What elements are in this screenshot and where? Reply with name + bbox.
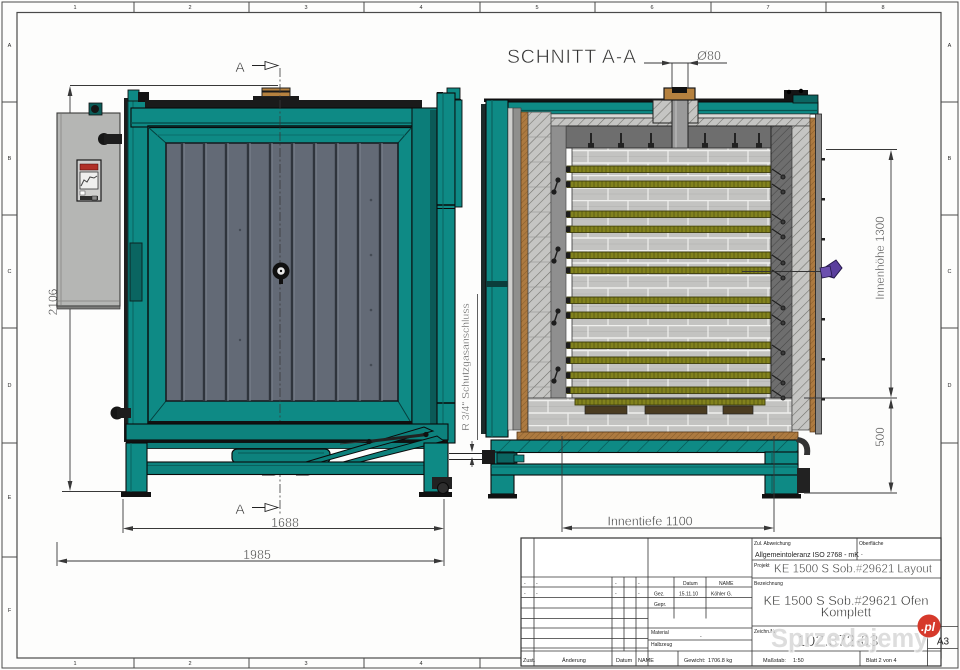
- svg-text:A: A: [948, 43, 952, 49]
- svg-text:2: 2: [188, 661, 191, 667]
- svg-text:C: C: [948, 269, 952, 275]
- svg-text:B: B: [948, 156, 952, 162]
- svg-text:500: 500: [875, 427, 887, 446]
- svg-text:6: 6: [650, 5, 653, 11]
- svg-text:1688: 1688: [271, 516, 299, 530]
- svg-text:15.11.10: 15.11.10: [679, 592, 698, 598]
- svg-text:C: C: [8, 269, 12, 275]
- svg-text:Komplett: Komplett: [821, 605, 872, 620]
- svg-text:A: A: [8, 43, 12, 49]
- svg-text:E: E: [8, 495, 12, 501]
- svg-text:Material: Material: [651, 630, 669, 636]
- svg-text:Innentiefe 1100: Innentiefe 1100: [607, 515, 692, 529]
- svg-text:4: 4: [419, 661, 422, 667]
- svg-text:8: 8: [881, 5, 884, 11]
- svg-text:4: 4: [419, 5, 422, 11]
- svg-text:Halbzeug: Halbzeug: [651, 642, 672, 648]
- svg-text:Datum: Datum: [616, 658, 633, 664]
- svg-text:3: 3: [304, 661, 307, 667]
- svg-text:Bezeichnung: Bezeichnung: [754, 581, 783, 587]
- svg-text:KE 1500 S Sob.#29621 Layout: KE 1500 S Sob.#29621 Layout: [774, 564, 933, 576]
- svg-text:R 3/4" Schutzgasanschluss: R 3/4" Schutzgasanschluss: [460, 303, 472, 430]
- svg-text:Projekt: Projekt: [754, 563, 770, 569]
- svg-text:2: 2: [188, 5, 191, 11]
- svg-text:1: 1: [73, 661, 76, 667]
- svg-text:Innenhöhe 1300: Innenhöhe 1300: [875, 216, 887, 299]
- svg-text:A: A: [235, 501, 245, 517]
- svg-text:D: D: [8, 383, 12, 389]
- svg-text:A: A: [235, 59, 245, 75]
- svg-text:1985: 1985: [243, 548, 271, 562]
- svg-text:A3: A3: [937, 637, 950, 648]
- svg-text:B: B: [8, 156, 12, 162]
- svg-text:.pl: .pl: [921, 620, 936, 634]
- svg-text:Gewicht:: Gewicht:: [684, 658, 706, 664]
- svg-text:Gepr.: Gepr.: [654, 602, 666, 608]
- svg-text:7: 7: [766, 5, 769, 11]
- svg-text:Gez.: Gez.: [654, 592, 665, 598]
- svg-text:Datum: Datum: [683, 581, 698, 587]
- svg-text:Zust.: Zust.: [523, 658, 536, 664]
- svg-text:1: 1: [73, 5, 76, 11]
- svg-text:SCHNITT A-A: SCHNITT A-A: [507, 46, 637, 68]
- svg-text:D: D: [948, 383, 952, 389]
- svg-text:NAME: NAME: [719, 581, 734, 587]
- svg-text:80: 80: [707, 49, 721, 63]
- svg-text:1:50: 1:50: [793, 658, 804, 664]
- svg-text:Allgemeintoleranz ISO 2768 - m: Allgemeintoleranz ISO 2768 - mK: [755, 552, 859, 559]
- svg-text:5: 5: [535, 5, 538, 11]
- svg-text:Köhler G.: Köhler G.: [711, 592, 732, 598]
- svg-text:Maßstab:: Maßstab:: [763, 658, 786, 664]
- svg-text:Oberfläche: Oberfläche: [859, 541, 884, 547]
- svg-text:NAME: NAME: [638, 658, 654, 664]
- svg-text:Änderung: Änderung: [562, 657, 586, 664]
- svg-text:Sprzedajemy: Sprzedajemy: [771, 625, 929, 653]
- svg-text:3: 3: [304, 5, 307, 11]
- svg-text:Zul. Abweichung: Zul. Abweichung: [754, 541, 791, 547]
- svg-text:Blatt 2 von 4: Blatt 2 von 4: [866, 658, 897, 664]
- svg-text:1706.8 kg: 1706.8 kg: [708, 658, 732, 664]
